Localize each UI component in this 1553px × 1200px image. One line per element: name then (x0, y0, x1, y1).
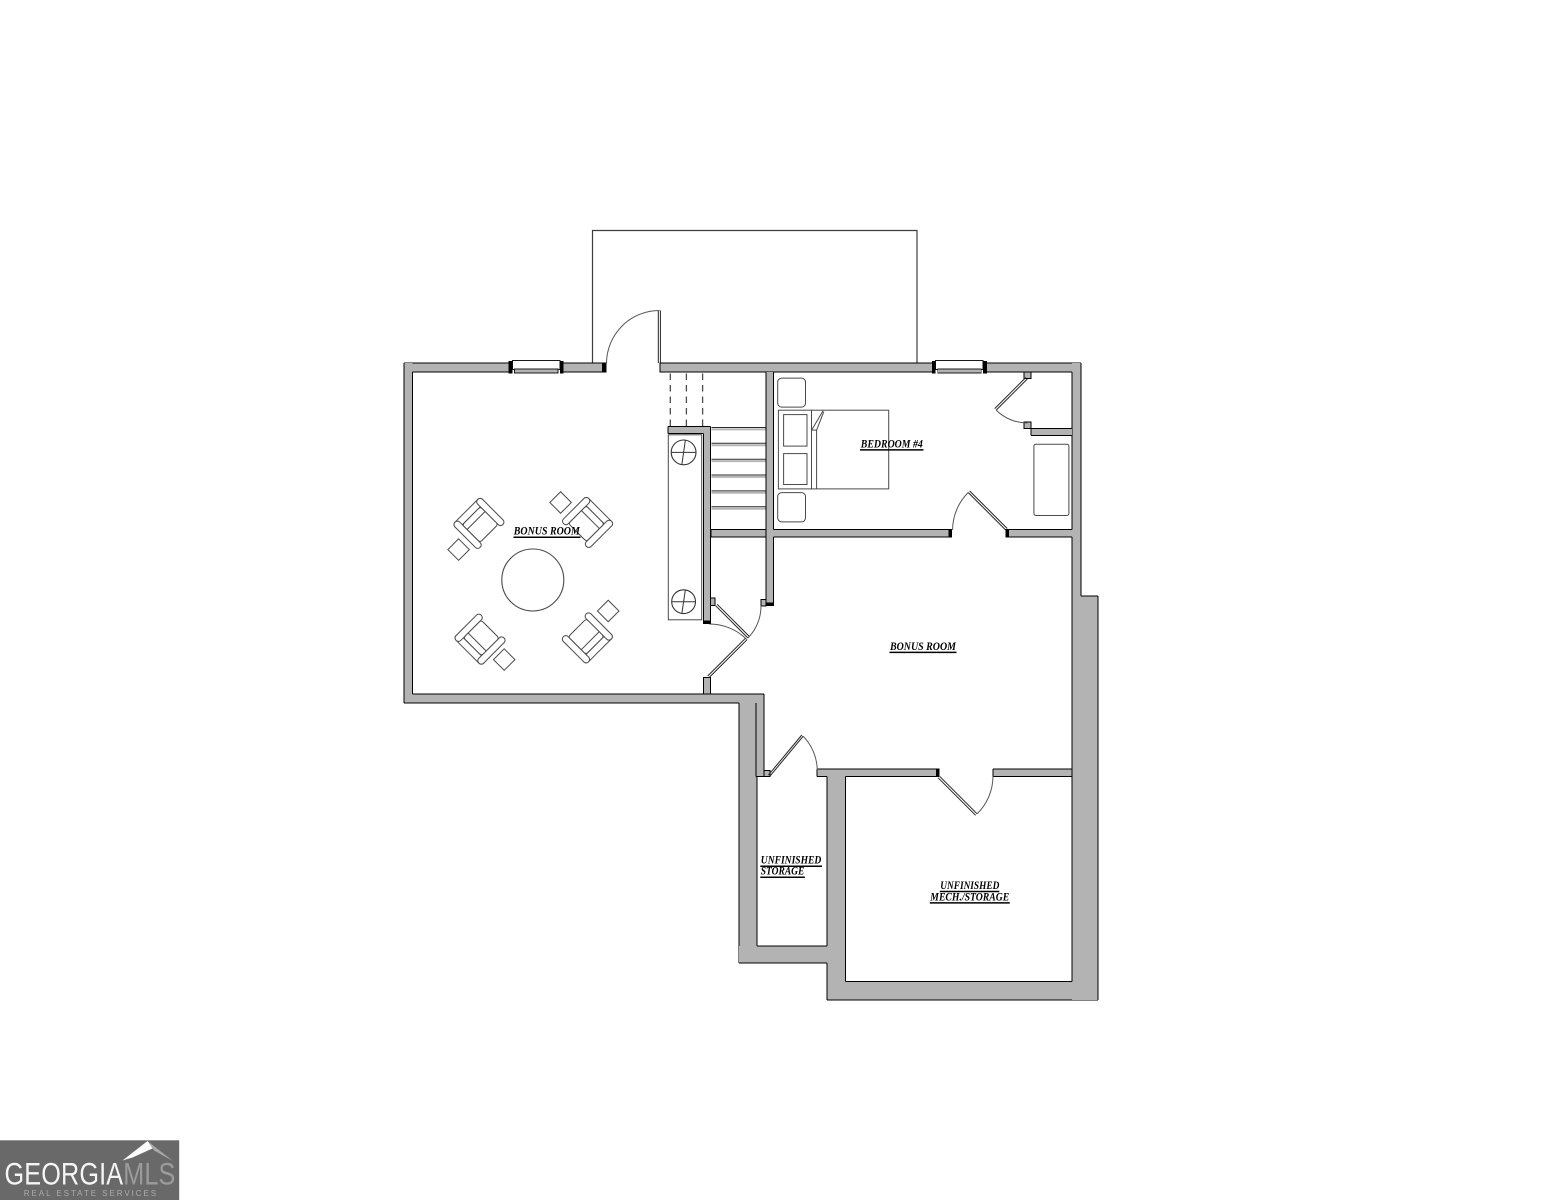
svg-text:BEDROOM #4: BEDROOM #4 (860, 436, 923, 450)
svg-text:MECH./STORAGE: MECH./STORAGE (929, 889, 1009, 903)
svg-text:STORAGE: STORAGE (761, 864, 805, 878)
svg-text:REAL ESTATE SERVICES: REAL ESTATE SERVICES (24, 1189, 158, 1198)
svg-text:GEORGIAMLS: GEORGIAMLS (5, 1157, 176, 1192)
svg-text:BONUS ROOM: BONUS ROOM (889, 639, 956, 653)
svg-text:BONUS ROOM: BONUS ROOM (513, 524, 580, 538)
